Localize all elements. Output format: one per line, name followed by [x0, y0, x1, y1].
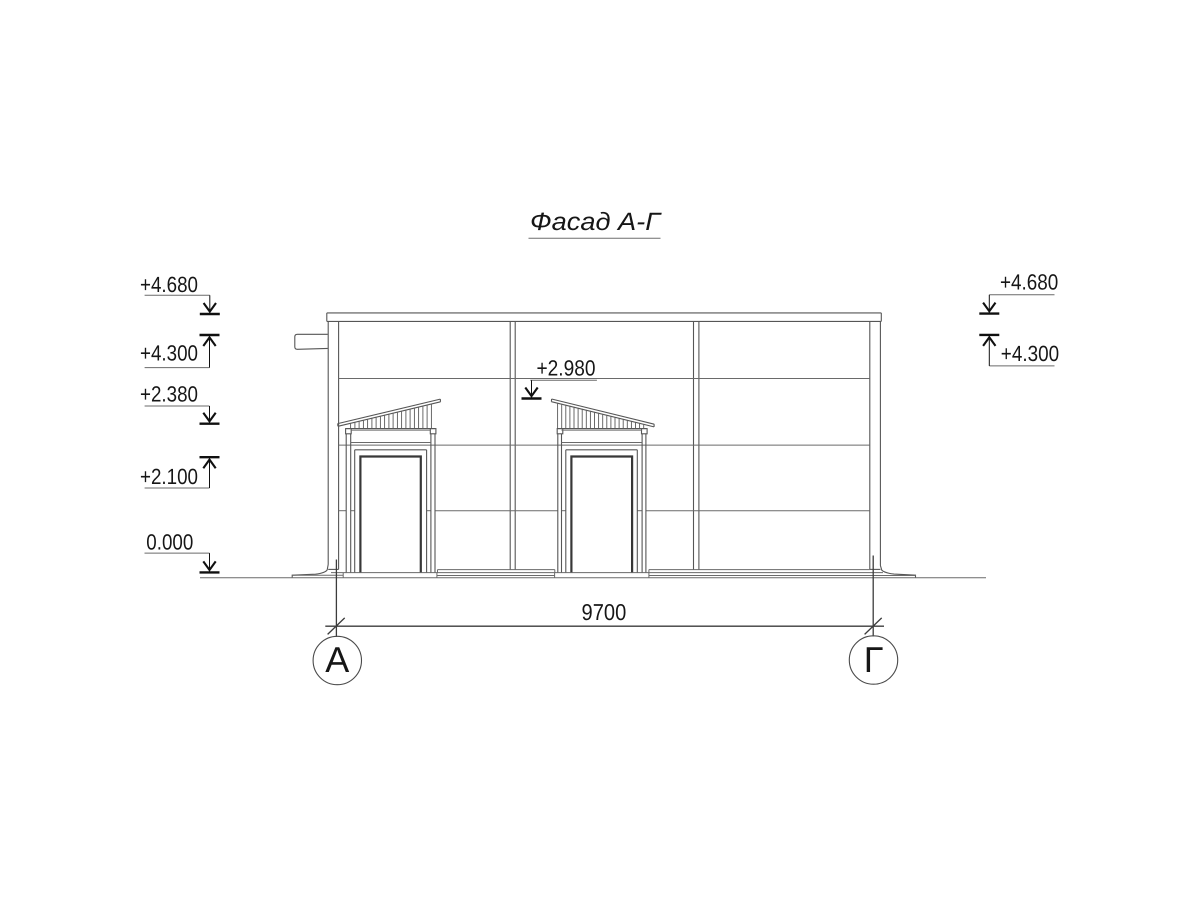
svg-text:9700: 9700 — [582, 599, 627, 625]
svg-text:+2.380: +2.380 — [140, 381, 198, 406]
svg-text:+4.300: +4.300 — [140, 340, 198, 365]
svg-text:Г: Г — [864, 639, 884, 680]
svg-text:+4.680: +4.680 — [140, 272, 198, 297]
svg-text:+4.680: +4.680 — [1000, 270, 1058, 295]
svg-text:+4.300: +4.300 — [1001, 341, 1059, 366]
svg-text:Фасад А-Г: Фасад А-Г — [530, 208, 663, 236]
svg-text:А: А — [325, 639, 349, 680]
svg-text:+2.980: +2.980 — [537, 356, 596, 381]
svg-text:+2.100: +2.100 — [140, 464, 198, 489]
svg-text:0.000: 0.000 — [146, 530, 193, 555]
